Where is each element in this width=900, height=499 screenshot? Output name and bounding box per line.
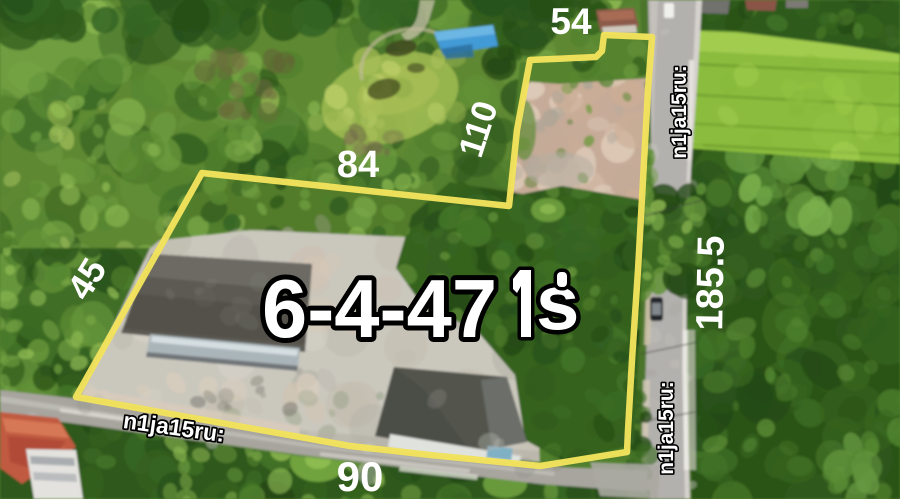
svg-text:84: 84: [337, 144, 379, 186]
svg-text:n1ja15ru:: n1ja15ru:: [668, 65, 691, 158]
svg-text:54: 54: [550, 1, 592, 42]
svg-text:6-4-47: 6-4-47: [262, 263, 497, 355]
svg-text:90: 90: [337, 453, 384, 499]
svg-text:n1ja15ru:: n1ja15ru:: [655, 381, 678, 474]
svg-text:185.5: 185.5: [689, 235, 733, 331]
